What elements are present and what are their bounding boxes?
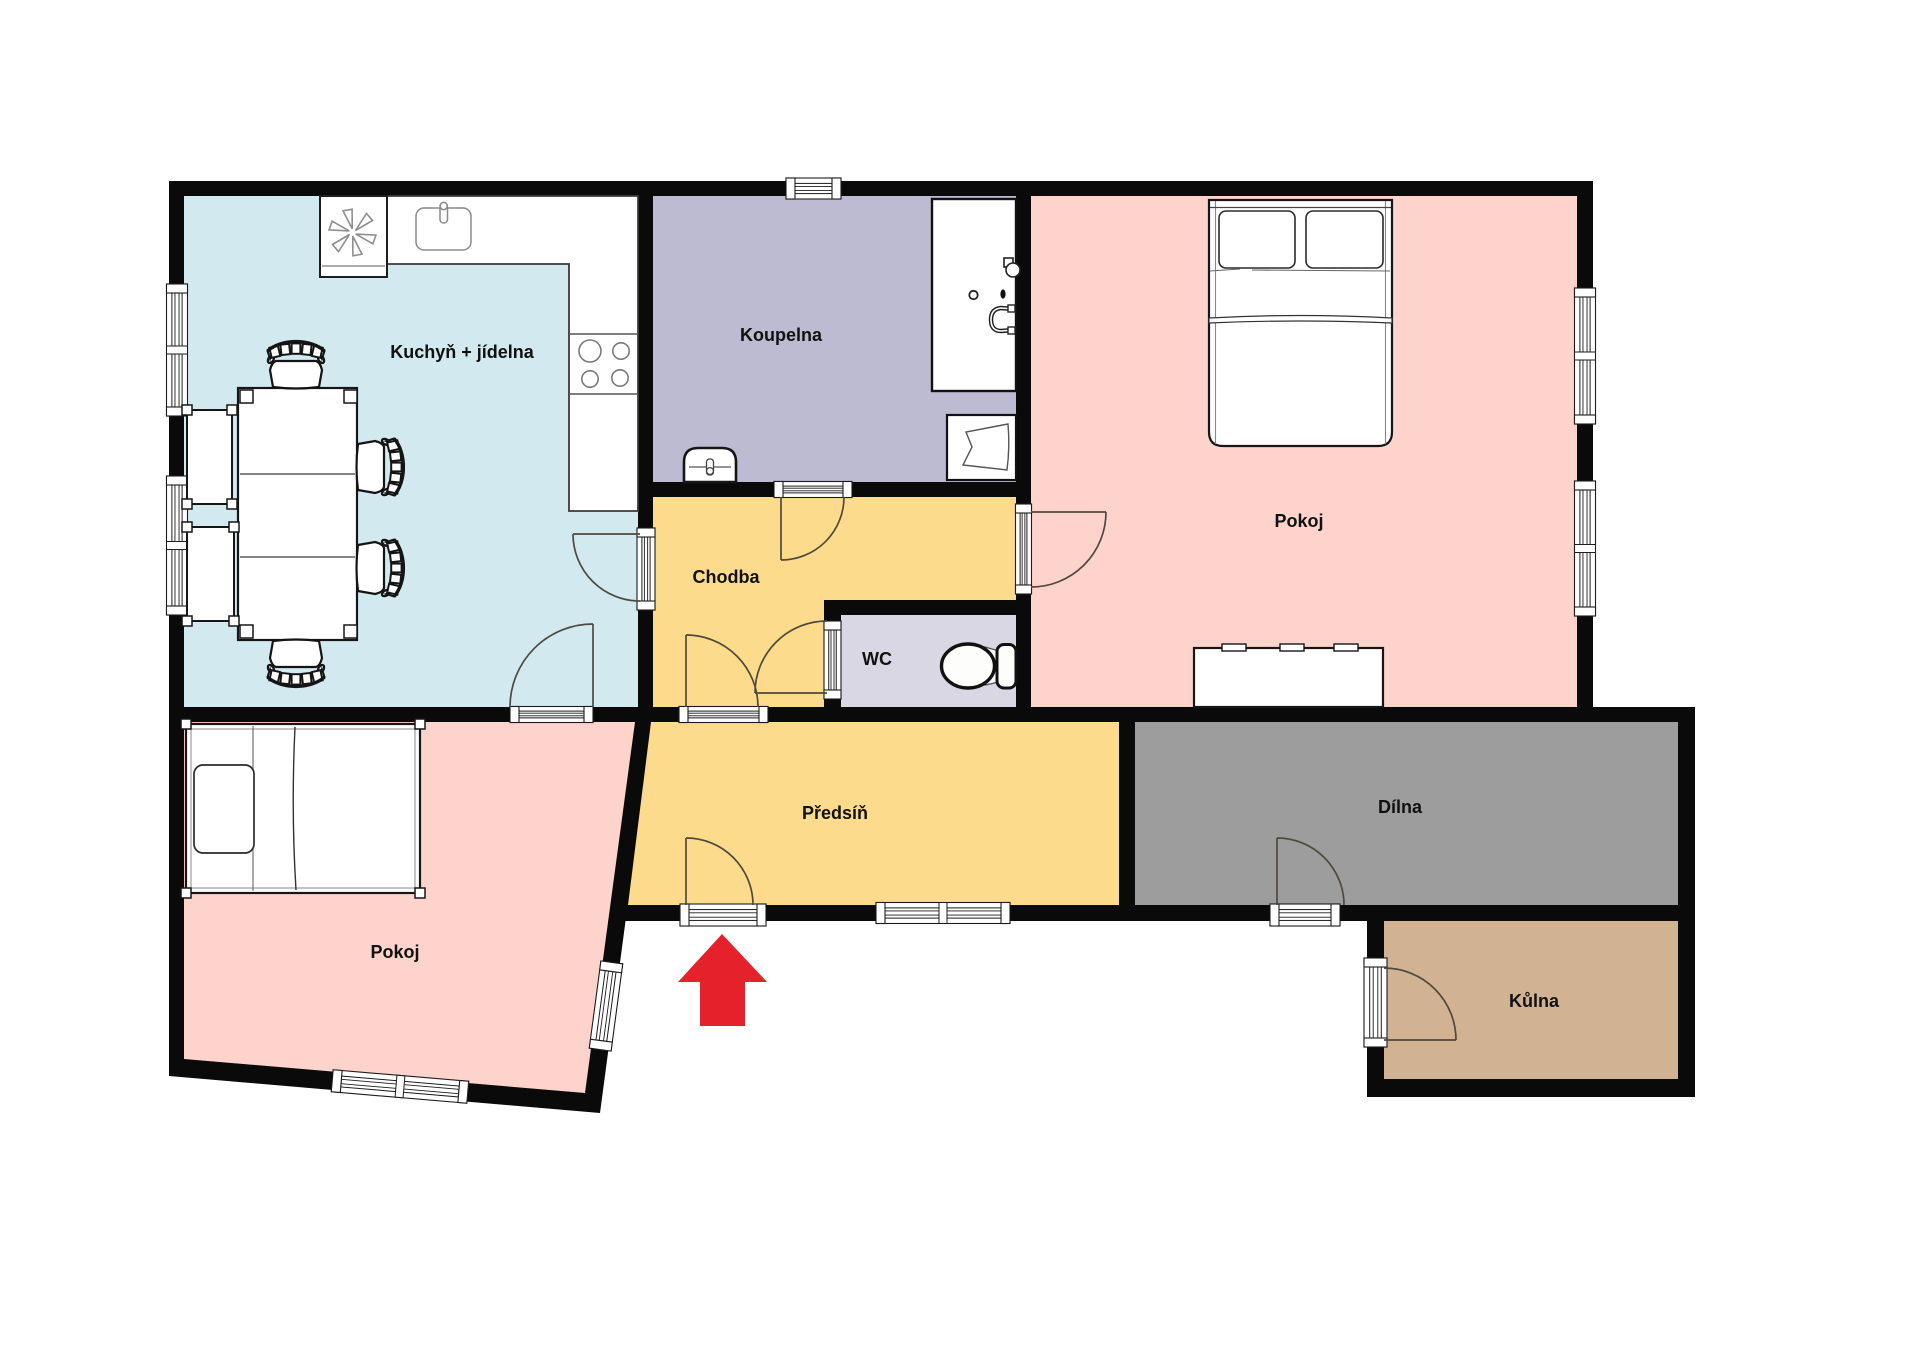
svg-text:WC: WC (862, 649, 892, 669)
svg-text:Chodba: Chodba (693, 567, 761, 587)
svg-text:Koupelna: Koupelna (740, 325, 823, 345)
svg-text:Pokoj: Pokoj (1274, 511, 1323, 531)
svg-text:Předsíň: Předsíň (802, 803, 868, 823)
svg-text:Kuchyň + jídelna: Kuchyň + jídelna (390, 342, 535, 362)
svg-text:Kůlna: Kůlna (1509, 991, 1560, 1011)
svg-text:Pokoj: Pokoj (370, 942, 419, 962)
svg-text:Dílna: Dílna (1378, 797, 1423, 817)
